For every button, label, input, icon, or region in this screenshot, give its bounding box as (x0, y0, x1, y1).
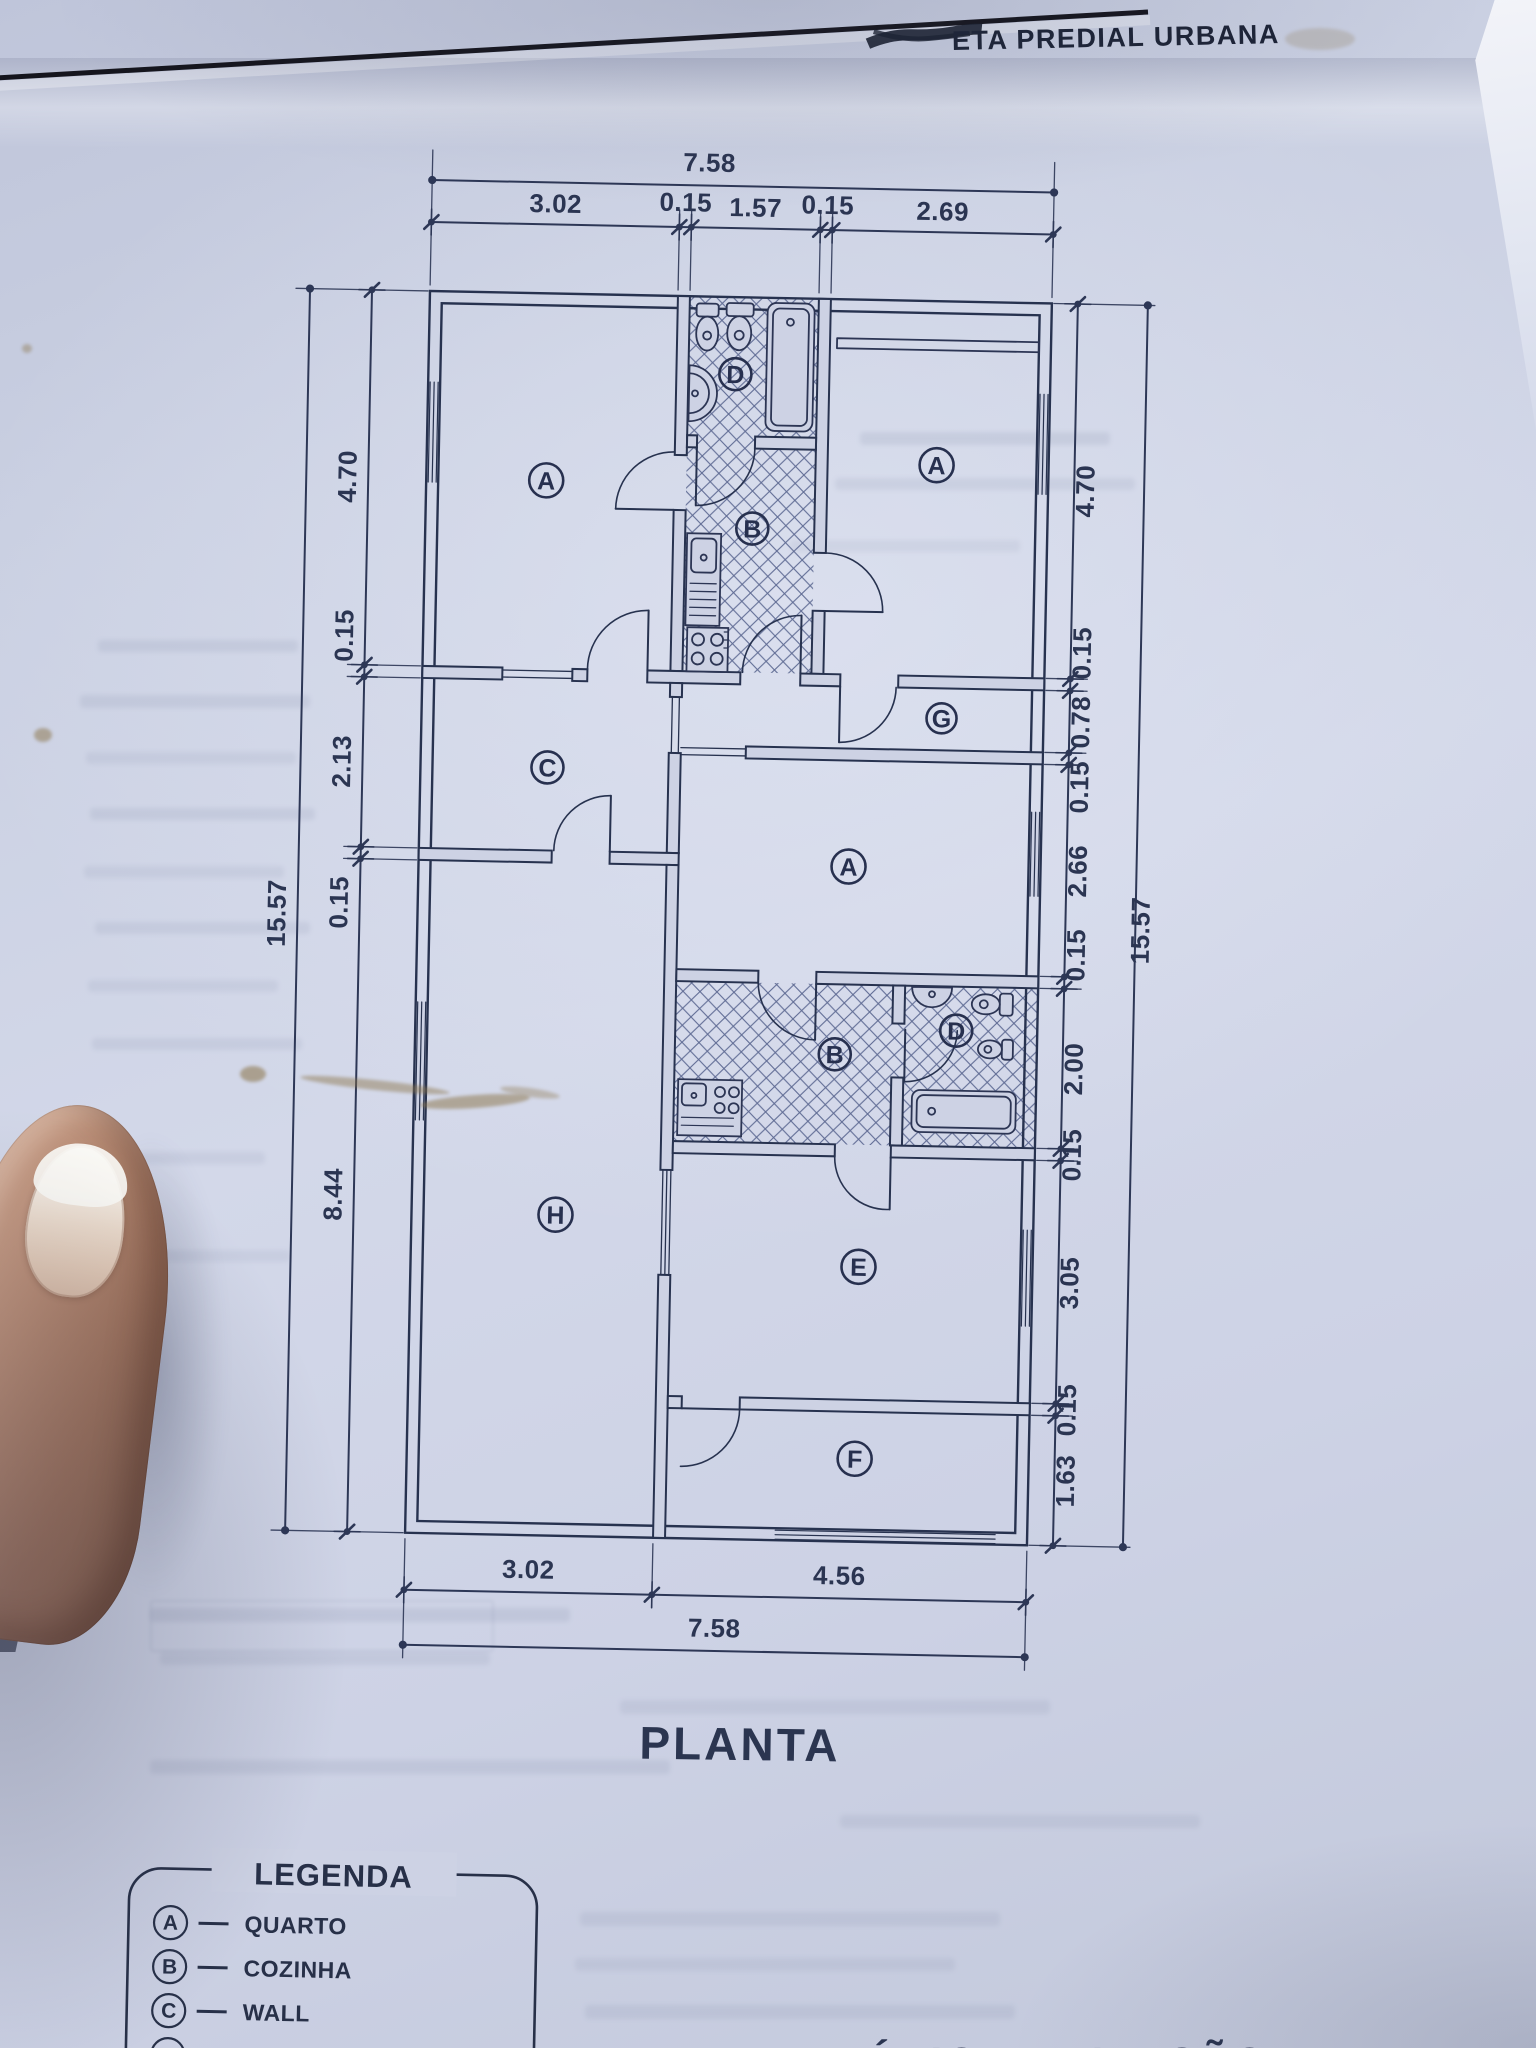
photo-vignette (0, 0, 1536, 2048)
photo-of-floor-plan-document: ETA PREDIAL URBANA (0, 0, 1536, 2048)
